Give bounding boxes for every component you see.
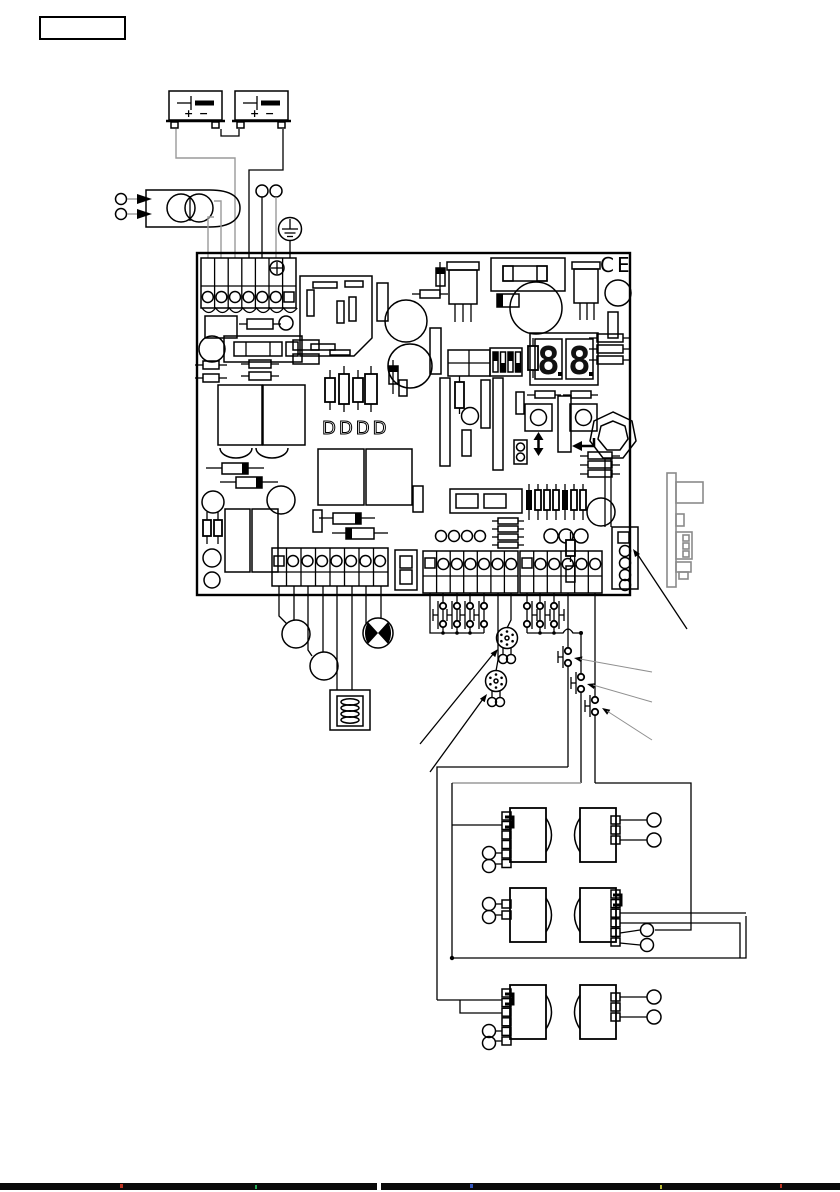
relay-cluster-middle [313,449,423,539]
resistor-cluster-mid: DDDD [322,360,407,439]
mains-arrow-icon [137,209,152,219]
fuse-area [199,316,302,362]
earth-screw-icon [270,261,284,275]
button-up-down [525,404,552,431]
contact-callout-arrows [574,656,652,740]
edge-connector [612,527,638,591]
battery-plus-label: + [250,107,259,120]
pushbutton-group-right [524,593,583,635]
page-bottom-scan-bar [0,1183,840,1190]
photocell-rx-row1 [483,808,552,873]
control-board: DDDD CE [195,253,638,595]
photocell-tx-row2 [483,888,552,942]
pushbutton-group-left [433,593,487,635]
scanned-wiring-diagram-page: + − + − [0,0,840,1192]
transformer [146,190,240,258]
battery-plus-label: + [184,107,193,120]
safety-contact-1 [558,646,571,668]
key-selector-1 [497,628,518,664]
terminal-block-outputs [272,548,388,586]
silkscreen-diodes: DDDD [322,418,389,439]
gearmotor [363,618,393,648]
courtesy-lamp [282,620,310,648]
battery-1: + − [166,91,225,128]
output-relay-row [450,452,620,520]
receiver-module [667,473,703,587]
safety-contact-3 [585,695,598,717]
seven-segment-display: 8 8 [530,333,598,385]
wire-ends [256,185,282,258]
connector-callout-arrow [633,549,687,629]
photocell-rx-row3 [483,985,552,1050]
ce-mark: CE [600,253,633,277]
photocell-rx-row2 [575,888,654,952]
photocell-tx-row3 [575,985,662,1039]
fuse-holder [224,336,302,362]
led-row-left [436,531,486,542]
selector-callout-arrows [420,649,498,772]
mains-terminal [116,194,127,205]
display-left-digit: 8 [537,339,560,383]
page-label-box [40,17,125,39]
up-down-arrow-icon [534,432,544,456]
photocell-tx-row1 [575,808,662,862]
jumper-block [514,440,527,464]
key-selector-2 [486,671,507,707]
transistor-2 [572,262,600,320]
battery-minus-label: − [265,107,274,120]
resistor-array [492,518,524,548]
battery-minus-label: − [199,107,208,120]
display-right-digit: 8 [568,339,591,383]
terminal-block-power [201,258,297,313]
command-inputs [420,593,518,772]
safety-inputs [524,593,652,783]
mains-terminal [116,209,127,220]
wiring-diagram: + − + − [0,0,840,1192]
electric-lock [330,690,370,730]
mains-arrow-icon [137,194,152,204]
terminal-block-safety [520,551,602,593]
dip-switch [448,348,522,376]
output-devices [279,586,393,730]
battery-2: + − [232,91,291,128]
fuse-vertical [395,550,417,590]
safety-contact-2 [571,672,584,694]
heatsink [300,276,388,356]
flashing-lamp [310,652,338,680]
terminal-block-inputs [423,551,518,593]
capacitor [199,336,225,362]
capacitor [385,300,427,342]
capacitor [510,282,562,334]
transistor-1 [412,262,479,322]
